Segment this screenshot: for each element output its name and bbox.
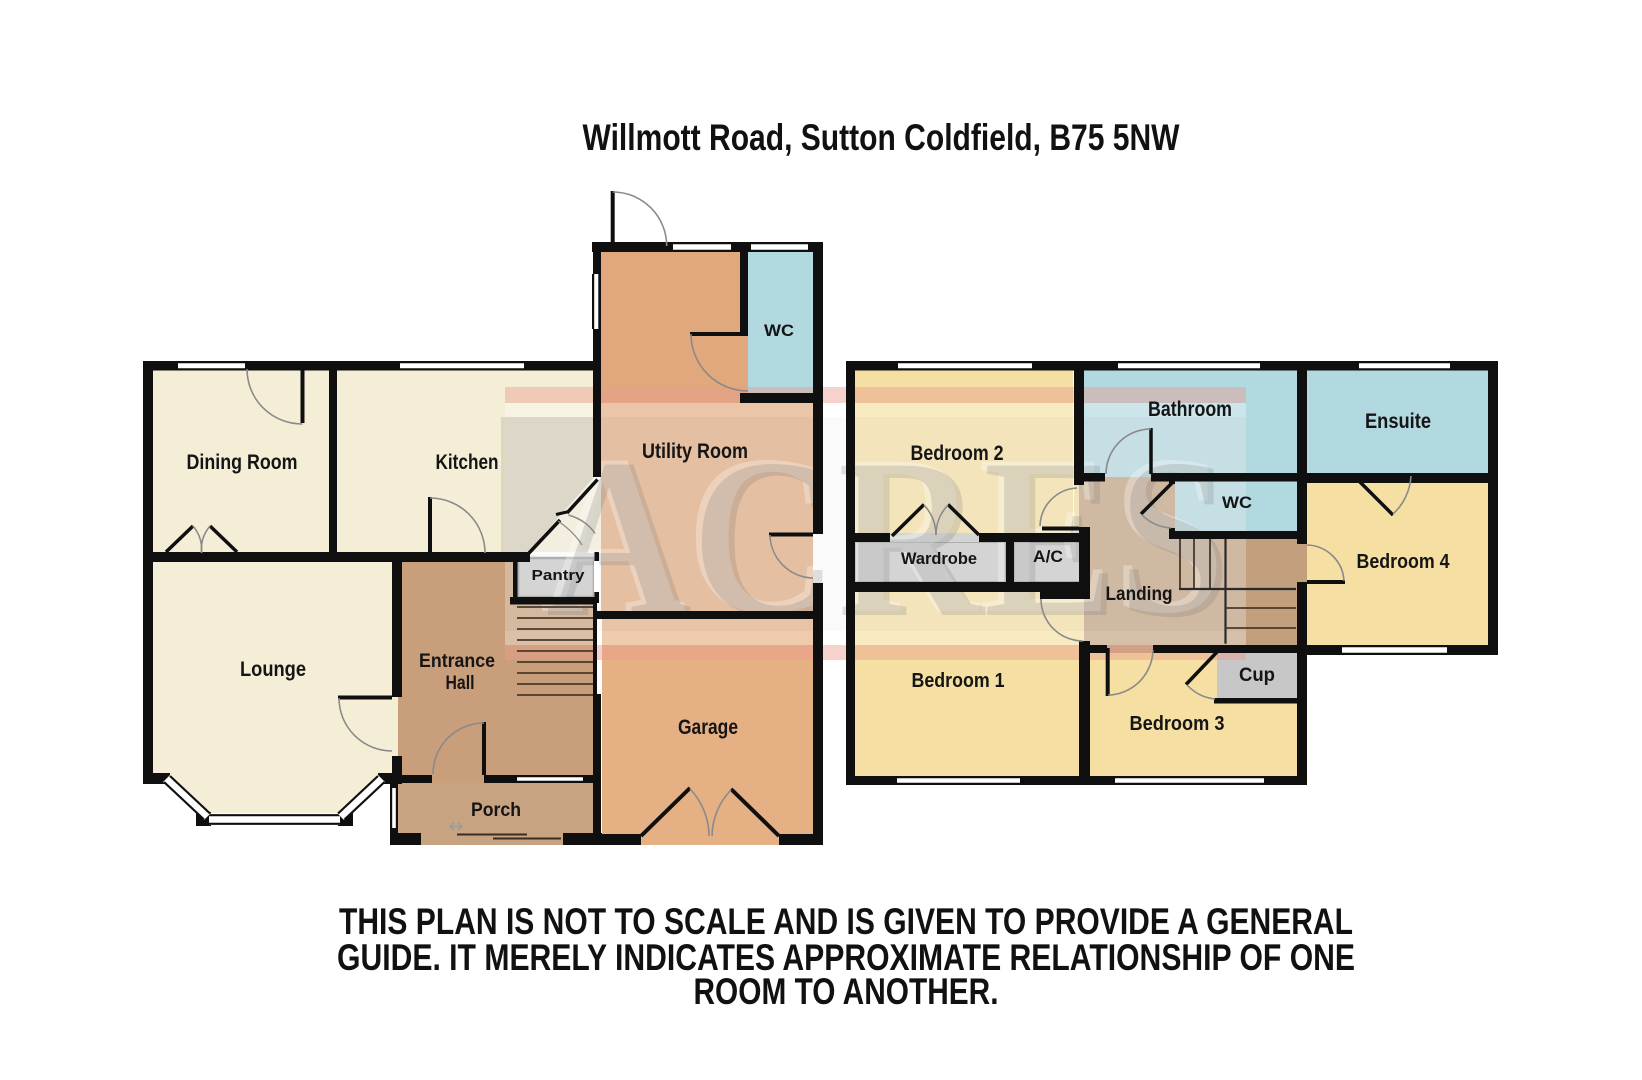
svg-text:Bedroom 2: Bedroom 2: [911, 442, 1004, 465]
svg-text:Pantry: Pantry: [532, 567, 586, 584]
svg-text:Landing: Landing: [1106, 584, 1173, 605]
svg-text:Porch: Porch: [471, 800, 521, 821]
svg-text:Kitchen: Kitchen: [436, 451, 499, 474]
svg-text:Willmott Road, Sutton Coldfiel: Willmott Road, Sutton Coldfield, B75 5NW: [583, 117, 1180, 158]
svg-text:THIS PLAN IS NOT TO SCALE AND: THIS PLAN IS NOT TO SCALE AND IS GIVEN T…: [339, 901, 1353, 942]
svg-text:Bedroom 1: Bedroom 1: [912, 670, 1005, 692]
svg-text:Lounge: Lounge: [240, 658, 306, 681]
svg-text:Wardrobe: Wardrobe: [901, 549, 977, 568]
svg-text:Hall: Hall: [446, 673, 475, 694]
svg-text:Cup: Cup: [1239, 665, 1275, 686]
svg-text:WC: WC: [1222, 493, 1252, 512]
svg-text:A/C: A/C: [1033, 547, 1063, 566]
svg-text:Entrance: Entrance: [419, 651, 495, 672]
svg-text:Ensuite: Ensuite: [1365, 410, 1431, 433]
svg-text:Utility Room: Utility Room: [642, 440, 748, 463]
svg-text:Bedroom 3: Bedroom 3: [1130, 713, 1225, 735]
svg-text:WC: WC: [764, 321, 794, 340]
svg-text:Bathroom: Bathroom: [1148, 398, 1232, 421]
svg-text:Bedroom 4: Bedroom 4: [1357, 551, 1451, 573]
svg-text:ROOM TO ANOTHER.: ROOM TO ANOTHER.: [694, 971, 999, 1012]
svg-text:Dining Room: Dining Room: [187, 451, 298, 474]
svg-text:Garage: Garage: [678, 716, 738, 739]
